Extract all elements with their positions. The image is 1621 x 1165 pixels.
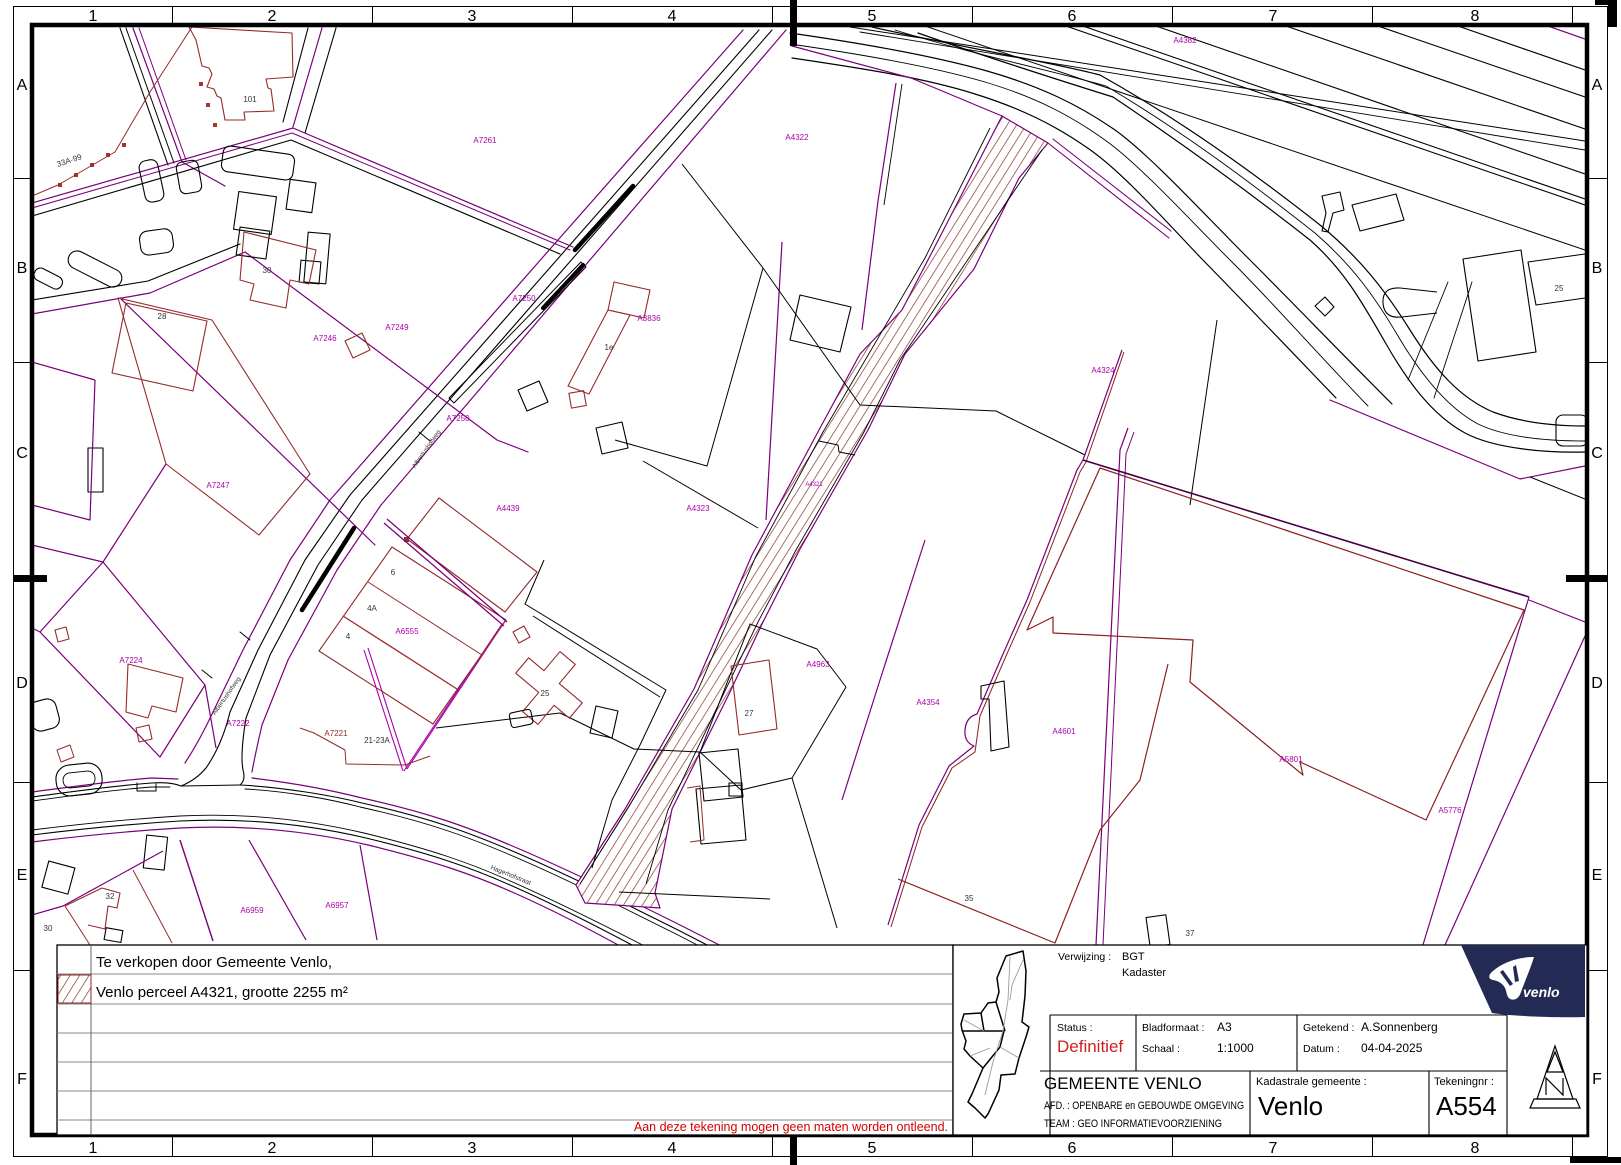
svg-text:8: 8 (1471, 1140, 1480, 1157)
svg-text:101: 101 (243, 95, 257, 104)
svg-text:A6959: A6959 (240, 906, 264, 915)
svg-text:A: A (1592, 77, 1603, 94)
svg-text:35: 35 (965, 894, 974, 903)
svg-text:4A: 4A (367, 604, 377, 613)
svg-text:A3836: A3836 (637, 314, 661, 323)
svg-text:A4322: A4322 (785, 133, 809, 142)
svg-text:4: 4 (668, 8, 677, 25)
svg-text:25: 25 (1555, 284, 1564, 293)
svg-text:A4963: A4963 (806, 660, 830, 669)
svg-text:E: E (1592, 867, 1603, 884)
svg-text:F: F (1592, 1071, 1602, 1088)
svg-text:25: 25 (541, 689, 550, 698)
svg-text:A7249: A7249 (385, 323, 409, 332)
svg-text:A6957: A6957 (325, 901, 349, 910)
svg-text:A7250: A7250 (512, 294, 536, 303)
svg-text:30: 30 (263, 266, 272, 275)
svg-text:1: 1 (89, 1140, 98, 1157)
svg-text:A4354: A4354 (916, 698, 940, 707)
svg-text:27: 27 (745, 709, 754, 718)
svg-text:A3: A3 (1217, 1020, 1232, 1034)
svg-text:7: 7 (1269, 1140, 1278, 1157)
svg-text:6: 6 (391, 568, 396, 577)
svg-text:E: E (17, 867, 28, 884)
svg-text:7: 7 (1269, 8, 1278, 25)
svg-text:A4439: A4439 (496, 504, 520, 513)
svg-text:A4321: A4321 (805, 482, 823, 488)
svg-text:D: D (1591, 675, 1603, 692)
svg-text:A7246: A7246 (313, 334, 337, 343)
svg-text:28: 28 (158, 312, 167, 321)
svg-text:4: 4 (346, 632, 351, 641)
svg-text:37: 37 (1186, 929, 1195, 938)
svg-text:1:1000: 1:1000 (1217, 1041, 1254, 1055)
svg-text:Status :: Status : (1057, 1022, 1093, 1034)
svg-text:GEMEENTE VENLO: GEMEENTE VENLO (1044, 1074, 1202, 1093)
svg-text:A5801: A5801 (1279, 755, 1303, 764)
svg-text:A.Sonnenberg: A.Sonnenberg (1361, 1020, 1438, 1034)
svg-text:Tekeningnr :: Tekeningnr : (1434, 1076, 1494, 1088)
svg-text:8: 8 (1471, 8, 1480, 25)
svg-text:A554: A554 (1436, 1091, 1497, 1121)
svg-text:04-04-2025: 04-04-2025 (1361, 1041, 1423, 1055)
svg-text:1: 1 (89, 8, 98, 25)
svg-text:B: B (17, 260, 28, 277)
svg-text:B: B (1592, 260, 1603, 277)
svg-text:A7250: A7250 (446, 414, 470, 423)
svg-text:6: 6 (1068, 1140, 1077, 1157)
svg-text:C: C (1591, 445, 1603, 462)
svg-text:1e: 1e (605, 343, 614, 352)
svg-text:F: F (17, 1071, 27, 1088)
svg-text:A6555: A6555 (395, 627, 419, 636)
svg-text:C: C (16, 445, 28, 462)
svg-text:5: 5 (868, 1140, 877, 1157)
svg-text:Bladformaat :: Bladformaat : (1142, 1022, 1204, 1034)
svg-text:Aan deze tekening mogen geen m: Aan deze tekening mogen geen maten worde… (634, 1120, 948, 1134)
svg-text:TEAM : GEO INFORMATIEVOORZIENI: TEAM : GEO INFORMATIEVOORZIENING (1044, 1118, 1222, 1130)
svg-text:2: 2 (268, 8, 277, 25)
svg-text:venlo: venlo (1523, 984, 1560, 1000)
svg-text:A7222: A7222 (226, 719, 250, 728)
svg-text:5: 5 (868, 8, 877, 25)
svg-text:A: A (17, 77, 28, 94)
svg-text:32: 32 (106, 892, 115, 901)
svg-text:A7247: A7247 (206, 481, 230, 490)
svg-text:A4382: A4382 (1173, 36, 1197, 45)
svg-text:3: 3 (468, 8, 477, 25)
svg-text:4: 4 (668, 1140, 677, 1157)
svg-text:3: 3 (468, 1140, 477, 1157)
svg-text:Definitief: Definitief (1057, 1037, 1123, 1056)
svg-text:2: 2 (268, 1140, 277, 1157)
svg-text:A4323: A4323 (686, 504, 710, 513)
svg-text:Verwijzing :: Verwijzing : (1058, 951, 1111, 963)
svg-text:Datum :: Datum : (1303, 1043, 1340, 1055)
svg-text:Te verkopen door Gemeente Venl: Te verkopen door Gemeente Venlo, (96, 954, 332, 971)
svg-text:A4324: A4324 (1091, 366, 1115, 375)
svg-text:Getekend :: Getekend : (1303, 1022, 1354, 1034)
svg-text:Kadastrale gemeente :: Kadastrale gemeente : (1256, 1076, 1367, 1088)
svg-text:D: D (16, 675, 28, 692)
svg-text:30: 30 (44, 924, 53, 933)
svg-text:A5776: A5776 (1438, 806, 1462, 815)
svg-text:A7224: A7224 (119, 656, 143, 665)
svg-text:A7261: A7261 (473, 136, 497, 145)
svg-text:BGT: BGT (1122, 951, 1145, 963)
svg-text:Kadaster: Kadaster (1122, 967, 1166, 979)
svg-text:A7221: A7221 (324, 729, 348, 738)
svg-text:A4601: A4601 (1052, 727, 1076, 736)
svg-text:21-23A: 21-23A (364, 736, 390, 745)
svg-text:6: 6 (1068, 8, 1077, 25)
svg-text:Schaal :: Schaal : (1142, 1043, 1180, 1055)
svg-text:AFD. : OPENBARE en GEBOUWDE OM: AFD. : OPENBARE en GEBOUWDE OMGEVING (1044, 1100, 1244, 1112)
svg-text:Venlo: Venlo (1258, 1091, 1323, 1121)
svg-text:Venlo perceel A4321, grootte 2: Venlo perceel A4321, grootte 2255 m² (96, 984, 348, 1001)
